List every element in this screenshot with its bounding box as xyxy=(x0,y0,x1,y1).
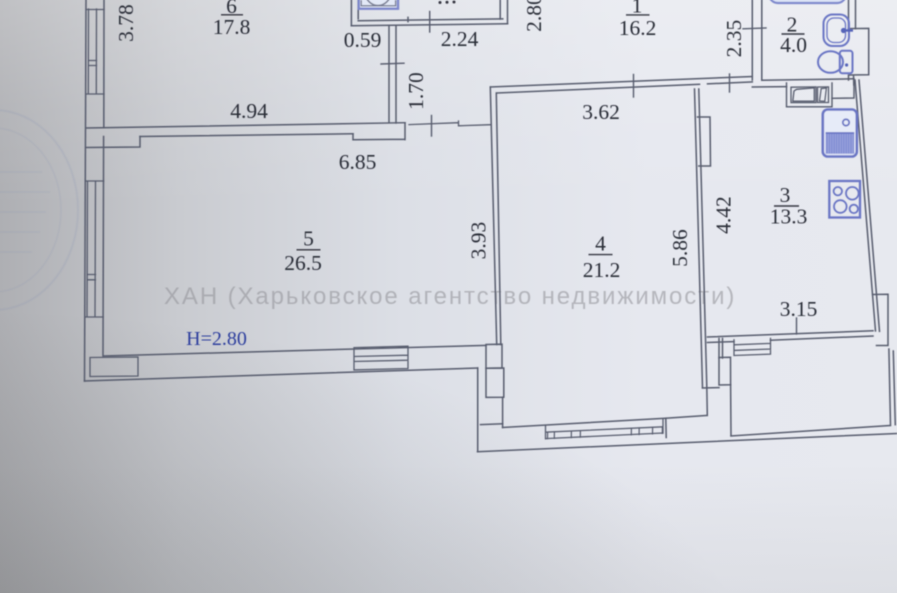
svg-text:5: 5 xyxy=(303,227,314,251)
svg-text:6.85: 6.85 xyxy=(339,150,377,174)
svg-text:2.80: 2.80 xyxy=(522,0,546,32)
svg-text:3: 3 xyxy=(780,183,791,207)
svg-text:2.35: 2.35 xyxy=(722,20,746,58)
svg-text:4.0: 4.0 xyxy=(780,33,807,57)
svg-text:4.94: 4.94 xyxy=(230,99,268,123)
svg-text:17.8: 17.8 xyxy=(213,15,251,39)
svg-text:0.59: 0.59 xyxy=(344,28,382,52)
svg-text:26.5: 26.5 xyxy=(284,251,322,275)
svg-text:16.2: 16.2 xyxy=(619,16,657,40)
svg-text:3.78: 3.78 xyxy=(114,4,138,42)
svg-text:ХАН (Харьковское агентство нед: ХАН (Харьковское агентство недвижимости) xyxy=(164,283,736,310)
svg-text:3.93: 3.93 xyxy=(467,222,491,260)
svg-text:1.70: 1.70 xyxy=(404,72,428,110)
svg-text:2.24: 2.24 xyxy=(441,27,479,51)
svg-text:13.3: 13.3 xyxy=(770,205,808,229)
svg-text:3.15: 3.15 xyxy=(780,297,818,321)
svg-text:21.2: 21.2 xyxy=(583,258,621,282)
svg-text:3.62: 3.62 xyxy=(582,100,620,124)
svg-text:4.42: 4.42 xyxy=(712,196,736,234)
svg-text:4: 4 xyxy=(595,232,606,256)
svg-text:5.86: 5.86 xyxy=(668,229,692,267)
svg-text:Н=2.80: Н=2.80 xyxy=(186,328,247,350)
